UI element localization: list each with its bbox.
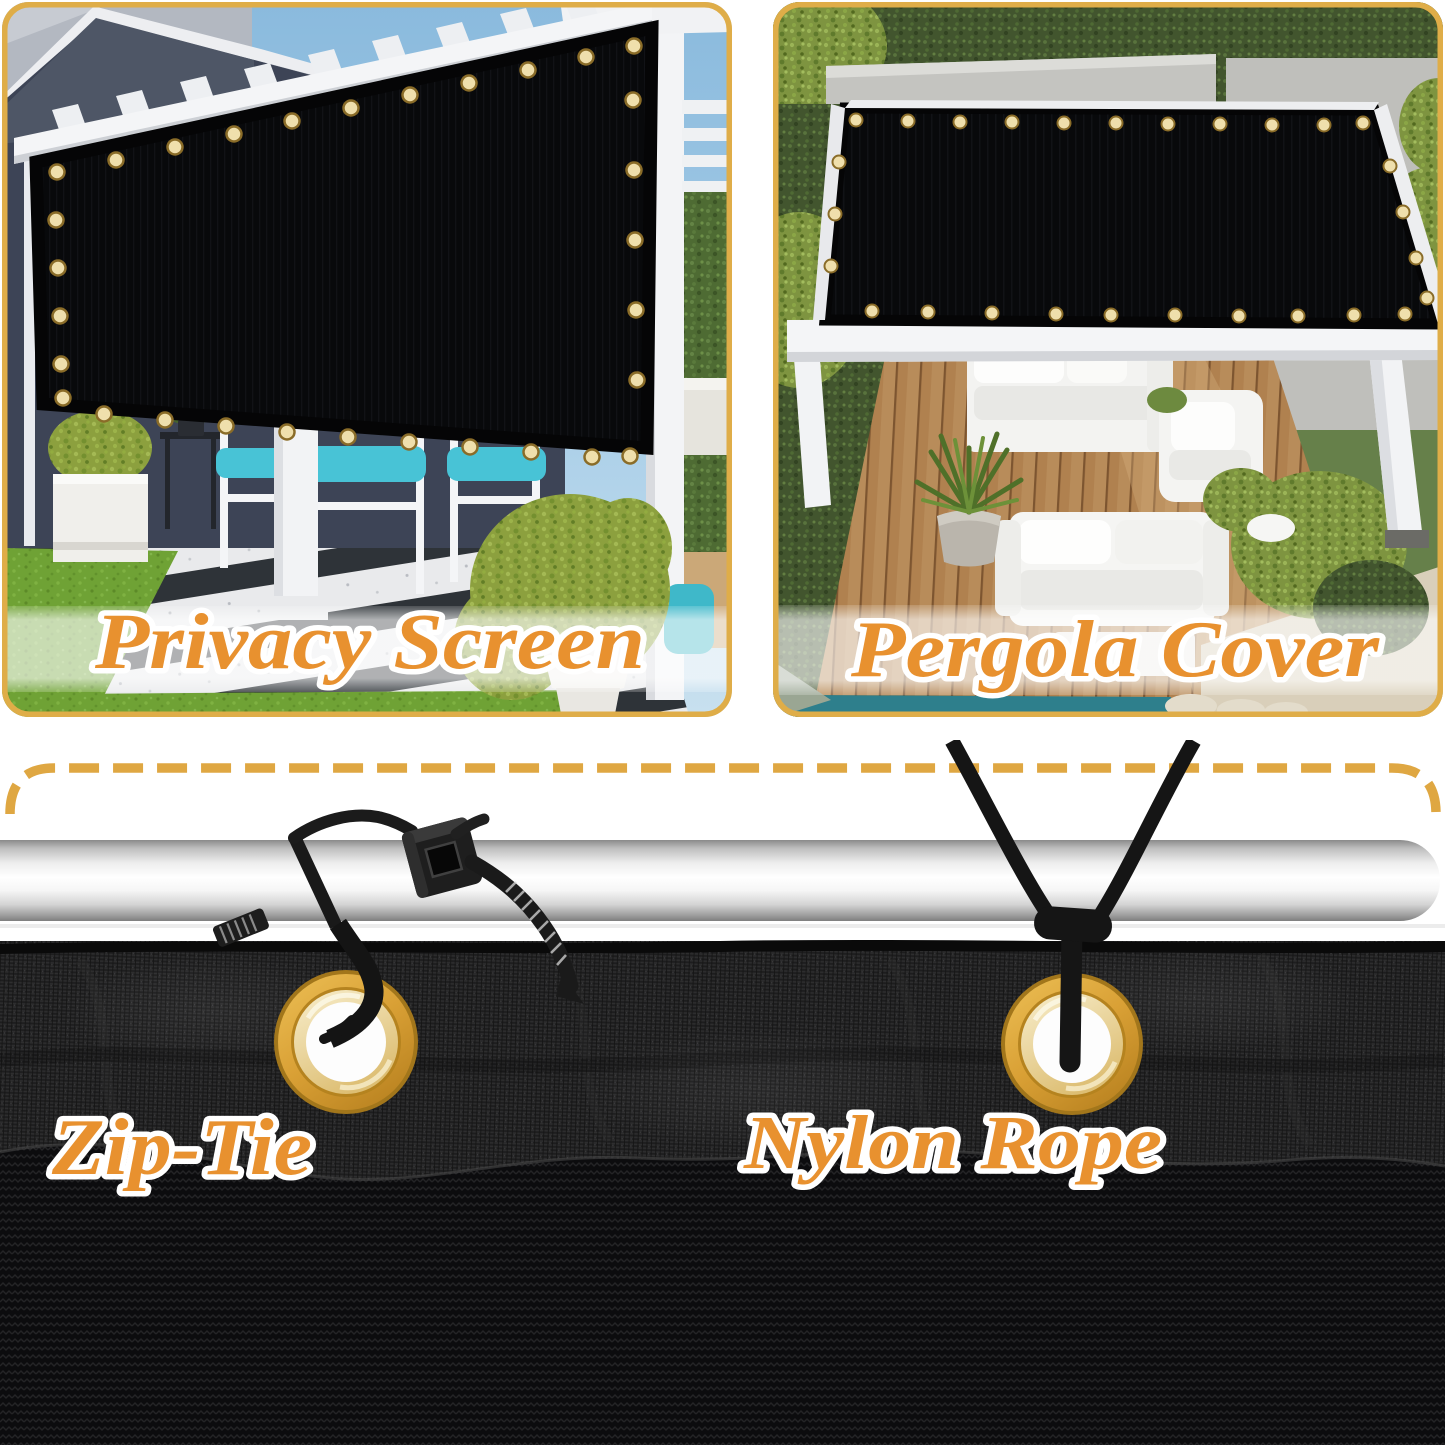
svg-text:Pergola Cover: Pergola Cover bbox=[850, 604, 1381, 694]
svg-text:Privacy Screen: Privacy Screen bbox=[94, 599, 645, 686]
svg-text:Nylon Rope: Nylon Rope bbox=[743, 1101, 1162, 1185]
svg-text:Zip-Tie: Zip-Tie bbox=[51, 1104, 312, 1192]
